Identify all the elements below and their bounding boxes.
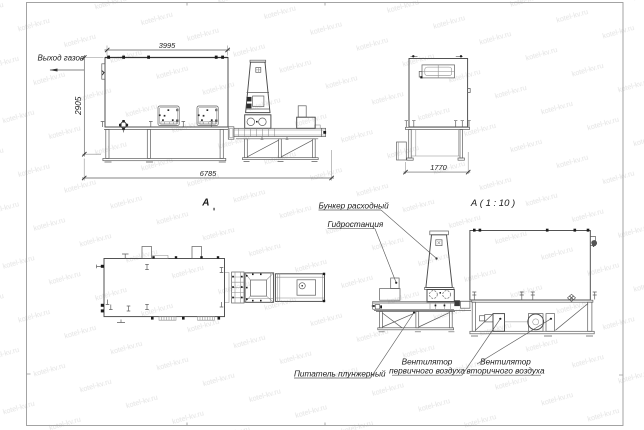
svg-text:6785: 6785 [200, 169, 217, 178]
svg-text:2905: 2905 [74, 96, 83, 116]
svg-text:первичного воздуха: первичного воздуха [389, 367, 465, 376]
svg-text:А ( 1 : 10 ): А ( 1 : 10 ) [470, 198, 515, 209]
svg-text:Питатель плунжерный: Питатель плунжерный [294, 369, 386, 378]
svg-text:А: А [201, 198, 209, 209]
svg-text:Выход газов: Выход газов [38, 53, 85, 62]
svg-text:Вентилятор: Вентилятор [480, 358, 531, 367]
svg-text:Вентилятор: Вентилятор [402, 358, 453, 367]
svg-text:вторичного воздуха: вторичного воздуха [467, 367, 545, 376]
svg-text:Бункер расходный: Бункер расходный [319, 201, 390, 210]
svg-text:1770: 1770 [430, 163, 447, 172]
svg-text:Гидростанция: Гидростанция [328, 220, 384, 229]
svg-text:3995: 3995 [159, 41, 176, 50]
